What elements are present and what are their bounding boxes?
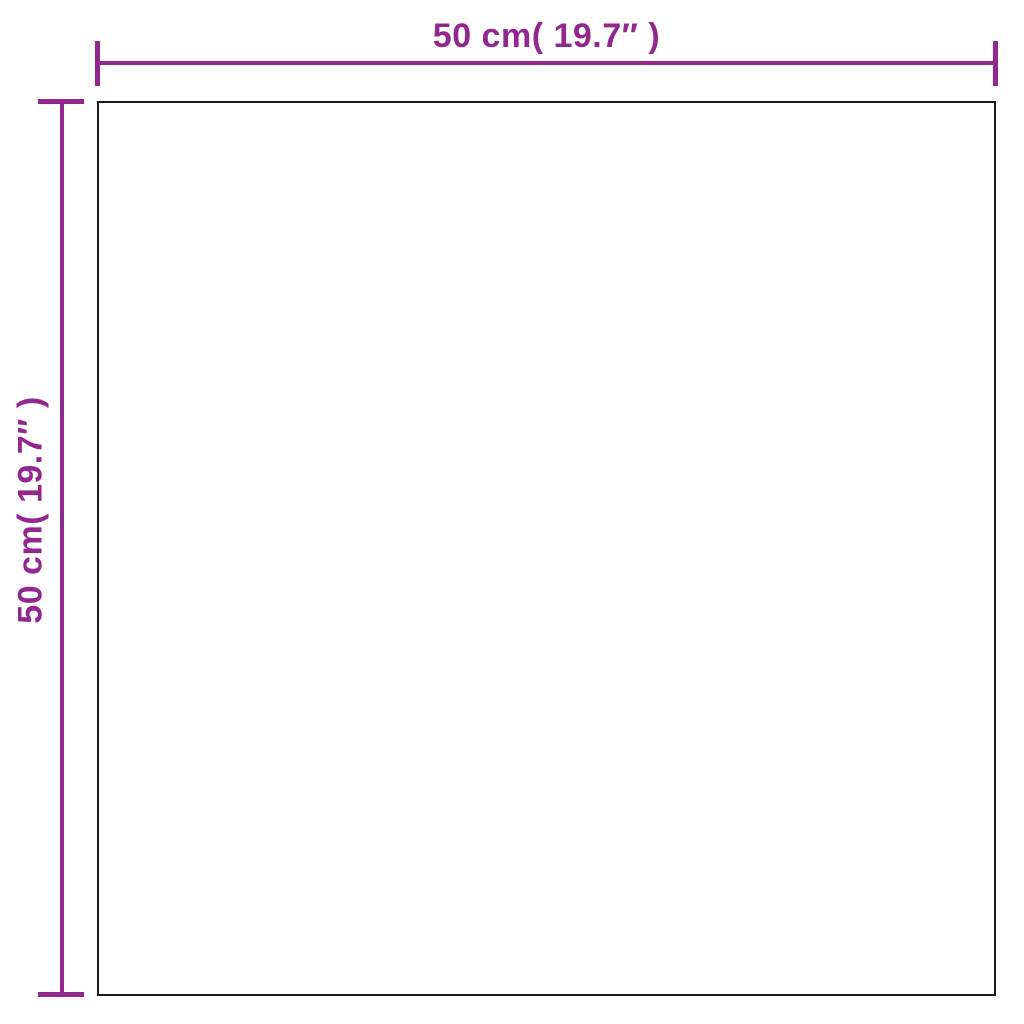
dimension-diagram: 50 cm( 19.7″ ) 50 cm( 19.7″ ) <box>0 0 1024 1024</box>
height-dimension-line <box>60 101 64 996</box>
product-outline <box>97 101 996 996</box>
height-dimension-label: 50 cm( 19.7″ ) <box>9 61 53 960</box>
height-dimension-bottom-tick <box>38 992 84 997</box>
width-dimension-line <box>97 61 996 65</box>
width-dimension-label: 50 cm( 19.7″ ) <box>97 14 996 58</box>
